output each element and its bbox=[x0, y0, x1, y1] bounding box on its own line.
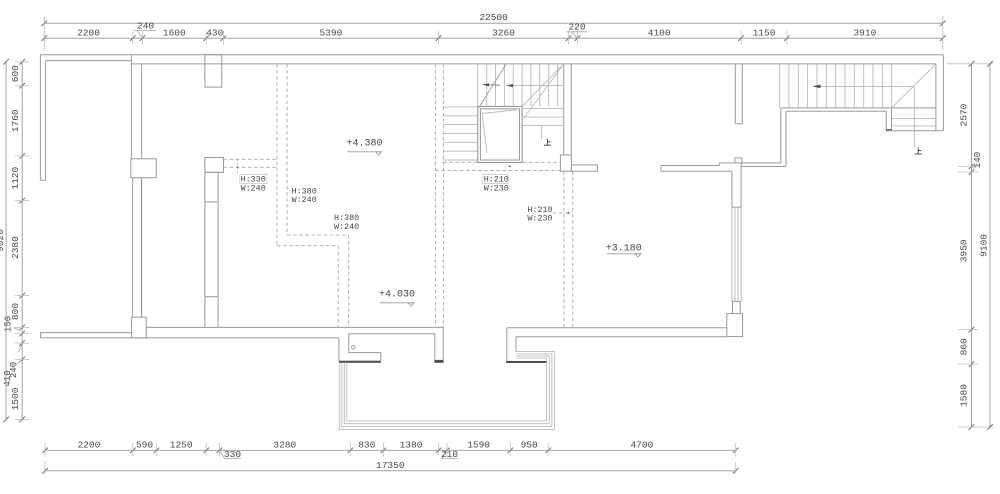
svg-text:4100: 4100 bbox=[648, 28, 671, 39]
svg-text:2200: 2200 bbox=[77, 28, 100, 39]
svg-text:9100: 9100 bbox=[978, 234, 989, 257]
svg-text:9020: 9020 bbox=[0, 229, 6, 252]
svg-text:W:240: W:240 bbox=[292, 195, 317, 205]
svg-text:330: 330 bbox=[224, 449, 241, 460]
svg-text:1590: 1590 bbox=[467, 440, 490, 451]
svg-text:3280: 3280 bbox=[273, 440, 296, 451]
svg-text:220: 220 bbox=[568, 22, 585, 33]
svg-text:1760: 1760 bbox=[10, 109, 21, 132]
svg-text:150: 150 bbox=[4, 316, 14, 332]
svg-text:590: 590 bbox=[136, 440, 153, 451]
svg-text:210: 210 bbox=[441, 449, 458, 460]
svg-text:2200: 2200 bbox=[77, 440, 100, 451]
svg-text:22500: 22500 bbox=[479, 12, 508, 23]
svg-text:1500: 1500 bbox=[10, 387, 21, 410]
svg-text:950: 950 bbox=[521, 440, 538, 451]
svg-text:5390: 5390 bbox=[319, 28, 342, 39]
svg-text:1250: 1250 bbox=[170, 440, 193, 451]
svg-text:W:230: W:230 bbox=[527, 214, 552, 224]
svg-text:3260: 3260 bbox=[492, 28, 515, 39]
svg-text:240: 240 bbox=[137, 20, 154, 31]
svg-text:3950: 3950 bbox=[959, 239, 970, 262]
svg-text:1120: 1120 bbox=[10, 167, 21, 190]
svg-text:410: 410 bbox=[3, 370, 13, 386]
svg-text:+4.030: +4.030 bbox=[379, 290, 415, 301]
svg-text:+3.180: +3.180 bbox=[606, 244, 642, 255]
svg-text:3910: 3910 bbox=[853, 28, 876, 39]
svg-text:W:230: W:230 bbox=[484, 183, 509, 193]
svg-text:17350: 17350 bbox=[376, 460, 405, 471]
svg-text:W:240: W:240 bbox=[334, 222, 359, 232]
svg-text:1580: 1580 bbox=[959, 384, 970, 407]
svg-text:1380: 1380 bbox=[400, 440, 423, 451]
svg-text:2570: 2570 bbox=[959, 103, 970, 126]
svg-text:4700: 4700 bbox=[630, 440, 653, 451]
svg-text:+4.380: +4.380 bbox=[346, 139, 382, 150]
svg-text:600: 600 bbox=[10, 65, 21, 82]
svg-text:1150: 1150 bbox=[753, 28, 776, 39]
svg-text:830: 830 bbox=[358, 440, 375, 451]
svg-text:2380: 2380 bbox=[10, 236, 21, 259]
svg-text:1600: 1600 bbox=[163, 28, 186, 39]
svg-text:430: 430 bbox=[206, 28, 223, 39]
svg-text:860: 860 bbox=[959, 338, 970, 355]
svg-text:W:240: W:240 bbox=[241, 183, 266, 193]
